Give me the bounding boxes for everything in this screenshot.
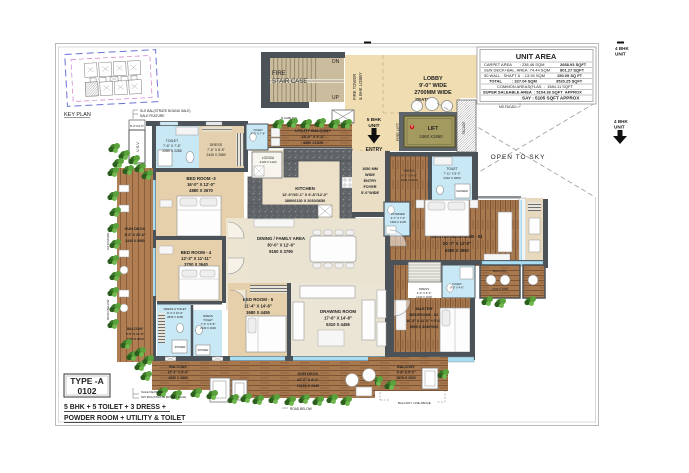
svg-text:4650 X 1520: 4650 X 1520 [168, 376, 187, 380]
svg-text:16'-5" X 11'-0" + 5'-0": 16'-5" X 11'-0" + 5'-0" [406, 319, 442, 323]
svg-text:WIDE: WIDE [365, 173, 375, 177]
svg-text:DINING / FAMILY AREA: DINING / FAMILY AREA [257, 236, 306, 241]
svg-text:2445 X 2580: 2445 X 2580 [206, 153, 225, 157]
svg-text:2285 X 2285: 2285 X 2285 [162, 149, 181, 153]
svg-text:17'-6" X 14'-8": 17'-6" X 14'-8" [324, 316, 352, 321]
svg-text:UP: UP [332, 95, 340, 101]
svg-text:4880 X 3670: 4880 X 3670 [189, 188, 213, 193]
svg-text:0102: 0102 [78, 386, 97, 396]
svg-text:MASTER: MASTER [416, 306, 433, 311]
svg-text:6280 X 3650: 6280 X 3650 [445, 248, 469, 253]
svg-text:SALE FEATURE: SALE FEATURE [140, 114, 165, 118]
svg-text:7'-6" X 7'-6": 7'-6" X 7'-6" [163, 144, 181, 148]
svg-text:COMMON AREAS(FLAS : 1584.11: COMMON AREAS(FLAS : 1584.11 SQFT [497, 84, 574, 89]
svg-text:V.S.V: V.S.V [135, 142, 140, 152]
svg-text:SUN DECK+BAL. AREA: 74.44 SQM: SUN DECK+BAL. AREA: 74.44 SQM [484, 68, 550, 73]
svg-text:5000 X 3340+600: 5000 X 3340+600 [410, 325, 438, 329]
svg-text:FACADE: FACADE [462, 122, 466, 135]
svg-text:9150 X 3790: 9150 X 3790 [269, 249, 293, 254]
svg-text:50 WALL . SHAFT & : 13.94 SQM: 50 WALL . SHAFT & : 13.94 SQM [484, 73, 545, 78]
svg-text:SALE FEATURE: SALE FEATURE [141, 390, 163, 394]
svg-text:1650 MM: 1650 MM [362, 167, 378, 171]
svg-text:20 -7" X 12'-0": 20 -7" X 12'-0" [443, 241, 471, 246]
svg-text:2130 X 1065: 2130 X 1065 [492, 287, 508, 291]
svg-text:MS.FACAD: MS.FACAD [499, 105, 516, 109]
svg-text:SUN DECK: SUN DECK [298, 371, 319, 376]
svg-text:UNIT: UNIT [614, 125, 625, 130]
svg-text:FIRE LIFT: FIRE LIFT [395, 122, 400, 141]
svg-text:2130 X 1120: 2130 X 1120 [260, 160, 277, 164]
svg-text:8'-0" X 29'-6": 8'-0" X 29'-6" [125, 233, 146, 237]
svg-text:15'-9" X 5'-0": 15'-9" X 5'-0" [301, 135, 324, 139]
svg-text:12'-3" X 11'-11": 12'-3" X 11'-11" [181, 256, 211, 261]
svg-text:BED ROOM - 5: BED ROOM - 5 [243, 297, 274, 302]
svg-text:DRESS: DRESS [404, 169, 415, 173]
svg-text:8'-0"X4'-0": 8'-0"X4'-0" [130, 124, 144, 128]
svg-text:SHOWER: SHOWER [175, 346, 186, 349]
svg-text:2130 X 2030: 2130 X 2030 [200, 326, 216, 330]
svg-text:9.0 M MARG: 9.0 M MARG [106, 232, 110, 250]
svg-text:DRAWING ROOM: DRAWING ROOM [320, 309, 356, 314]
svg-text:2668.93 SQFT: 2668.93 SQFT [560, 62, 587, 67]
svg-text:2410 X 2660: 2410 X 2660 [443, 176, 460, 180]
svg-text:5 BHK + 5 TOILET + 3 DRESS +: 5 BHK + 5 TOILET + 3 DRESS + [64, 404, 166, 411]
svg-text:BALCONY LINE ABOVE: BALCONY LINE ABOVE [398, 401, 431, 405]
svg-text:5'-0"WIDE: 5'-0"WIDE [361, 191, 380, 195]
svg-text:UTILITY BALCONY: UTILITY BALCONY [295, 128, 331, 133]
svg-text:30'-0" X 12'-6": 30'-0" X 12'-6" [267, 243, 295, 248]
svg-text:BEDROOM - 02: BEDROOM - 02 [410, 312, 440, 317]
svg-text:4 BHK: 4 BHK [615, 46, 629, 51]
svg-text:BALCONY: BALCONY [127, 327, 144, 331]
svg-text:TOTAL : 327.04 SQM: TOTAL : 327.04 SQM [489, 79, 538, 84]
svg-text:ROAD BELOW: ROAD BELOW [106, 299, 110, 320]
svg-text:3520.25 SQFT: 3520.25 SQFT [556, 79, 583, 84]
svg-text:POWDER ROOM + UTILITY & TOILET: POWDER ROOM + UTILITY & TOILET [64, 415, 186, 422]
svg-text:9'-8" X 5'-0": 9'-8" X 5'-0" [397, 371, 416, 375]
svg-text:5'-6" X 11'-6": 5'-6" X 11'-6" [126, 332, 145, 336]
svg-text:SAY : 5105 SQFT APPROX: SAY : 5105 SQFT APPROX [522, 96, 580, 101]
svg-text:FIRE TOWER: FIRE TOWER [352, 74, 357, 100]
svg-text:9'-0" WIDE: 9'-0" WIDE [419, 83, 447, 89]
svg-text:915 BAL(STRATE BOUND SALE): 915 BAL(STRATE BOUND SALE) [141, 395, 186, 399]
svg-text:15'-3" X 5'-0": 15'-3" X 5'-0" [168, 371, 189, 375]
svg-text:SLS BAL(STRATE BOUND SALE): SLS BAL(STRATE BOUND SALE) [140, 109, 191, 113]
svg-text:4390 X1520: 4390 X1520 [303, 141, 323, 145]
svg-text:2845 X 3200: 2845 X 3200 [167, 315, 183, 319]
svg-text:SUPER SALEABLE AREA : 5104.36: SUPER SALEABLE AREA : 5104.36 SQFT APPRO… [483, 90, 582, 95]
svg-text:33'-6" X 8'-0": 33'-6" X 8'-0" [297, 378, 319, 382]
svg-text:TOILET: TOILET [166, 139, 179, 143]
svg-text:3890/6130 X 2030/3650: 3890/6130 X 2030/3650 [285, 199, 326, 203]
svg-text:10200 X 2440: 10200 X 2440 [297, 384, 319, 388]
svg-text:FIRE: FIRE [272, 71, 286, 77]
svg-text:1390 X 2135: 1390 X 2135 [390, 220, 406, 224]
svg-text:TYPE -A: TYPE -A [70, 376, 104, 386]
svg-text:OPEN TO SKY: OPEN TO SKY [491, 154, 546, 161]
svg-text:BALCONY: BALCONY [397, 365, 415, 369]
svg-text:801.27 SQFT: 801.27 SQFT [560, 68, 585, 73]
svg-text:DN: DN [332, 59, 340, 65]
svg-text:TOILET: TOILET [452, 282, 462, 286]
svg-text:UNIT: UNIT [615, 52, 626, 57]
svg-text:BED ROOM -3: BED ROOM -3 [186, 176, 216, 181]
svg-text:LIFT: LIFT [428, 126, 439, 132]
svg-text:FOYER: FOYER [363, 185, 376, 189]
svg-text:TOILET: TOILET [446, 167, 457, 171]
svg-text:2440 X 8990: 2440 X 8990 [125, 239, 144, 243]
svg-text:UNIT AREA: UNIT AREA [516, 52, 557, 61]
svg-text:SHOWER: SHOWER [456, 189, 468, 193]
svg-text:BED ROOM - 4: BED ROOM - 4 [181, 250, 212, 255]
svg-text:2876 X 1520: 2876 X 1520 [396, 376, 415, 380]
svg-text:KEY PLAN: KEY PLAN [64, 112, 91, 118]
svg-text:SUN DECK: SUN DECK [125, 226, 146, 231]
svg-text:BALCONY: BALCONY [169, 365, 187, 369]
svg-text:6'-3" X 8'-8": 6'-3" X 8'-8" [401, 174, 417, 178]
svg-text:BALCONY: BALCONY [493, 269, 507, 273]
svg-text:7'-11" X 8'-9": 7'-11" X 8'-9" [443, 172, 460, 176]
svg-text:& BHK LOBBY: & BHK LOBBY [358, 72, 363, 100]
svg-text:ROAD BELOW: ROAD BELOW [290, 407, 312, 411]
svg-text:LOBBY: LOBBY [423, 76, 443, 82]
svg-text:4'-0" X 7'-6": 4'-0" X 7'-6" [251, 132, 266, 136]
svg-text:5 BHK: 5 BHK [367, 117, 382, 123]
svg-text:16'-0" X 12'-0": 16'-0" X 12'-0" [187, 182, 215, 187]
svg-text:5310 X 4455: 5310 X 4455 [326, 322, 350, 327]
svg-text:2460 X1950: 2460 X1950 [419, 134, 443, 139]
svg-text:3680 X 4455: 3680 X 4455 [246, 310, 270, 315]
svg-text:11'-4" X 14'-8": 11'-4" X 14'-8" [244, 304, 272, 309]
svg-text:7'-6" X 8'-5": 7'-6" X 8'-5" [207, 148, 225, 152]
svg-text:SHOWER: SHOWER [198, 349, 209, 352]
svg-text:STAIR CASE: STAIR CASE [272, 79, 307, 85]
svg-text:KITCHEN: KITCHEN [295, 186, 315, 191]
svg-text:4 BHK: 4 BHK [614, 119, 628, 124]
svg-text:CARPET AREA : 238.46 SQM: CARPET AREA : 238.46 SQM [484, 62, 544, 67]
svg-text:12'-9"/20'-1" X 6'-8"/12'-0": 12'-9"/20'-1" X 6'-8"/12'-0" [282, 193, 328, 197]
svg-text:8'-0" X 4'-6": 8'-0" X 4'-6" [450, 286, 464, 290]
svg-text:ENTRY: ENTRY [364, 179, 377, 183]
svg-text:1905 X 2645: 1905 X 2645 [400, 178, 417, 182]
svg-text:150.05 SQ FT: 150.05 SQ FT [557, 73, 583, 78]
svg-text:DRESS: DRESS [210, 143, 223, 147]
svg-text:2700MM WIDE: 2700MM WIDE [414, 90, 452, 96]
